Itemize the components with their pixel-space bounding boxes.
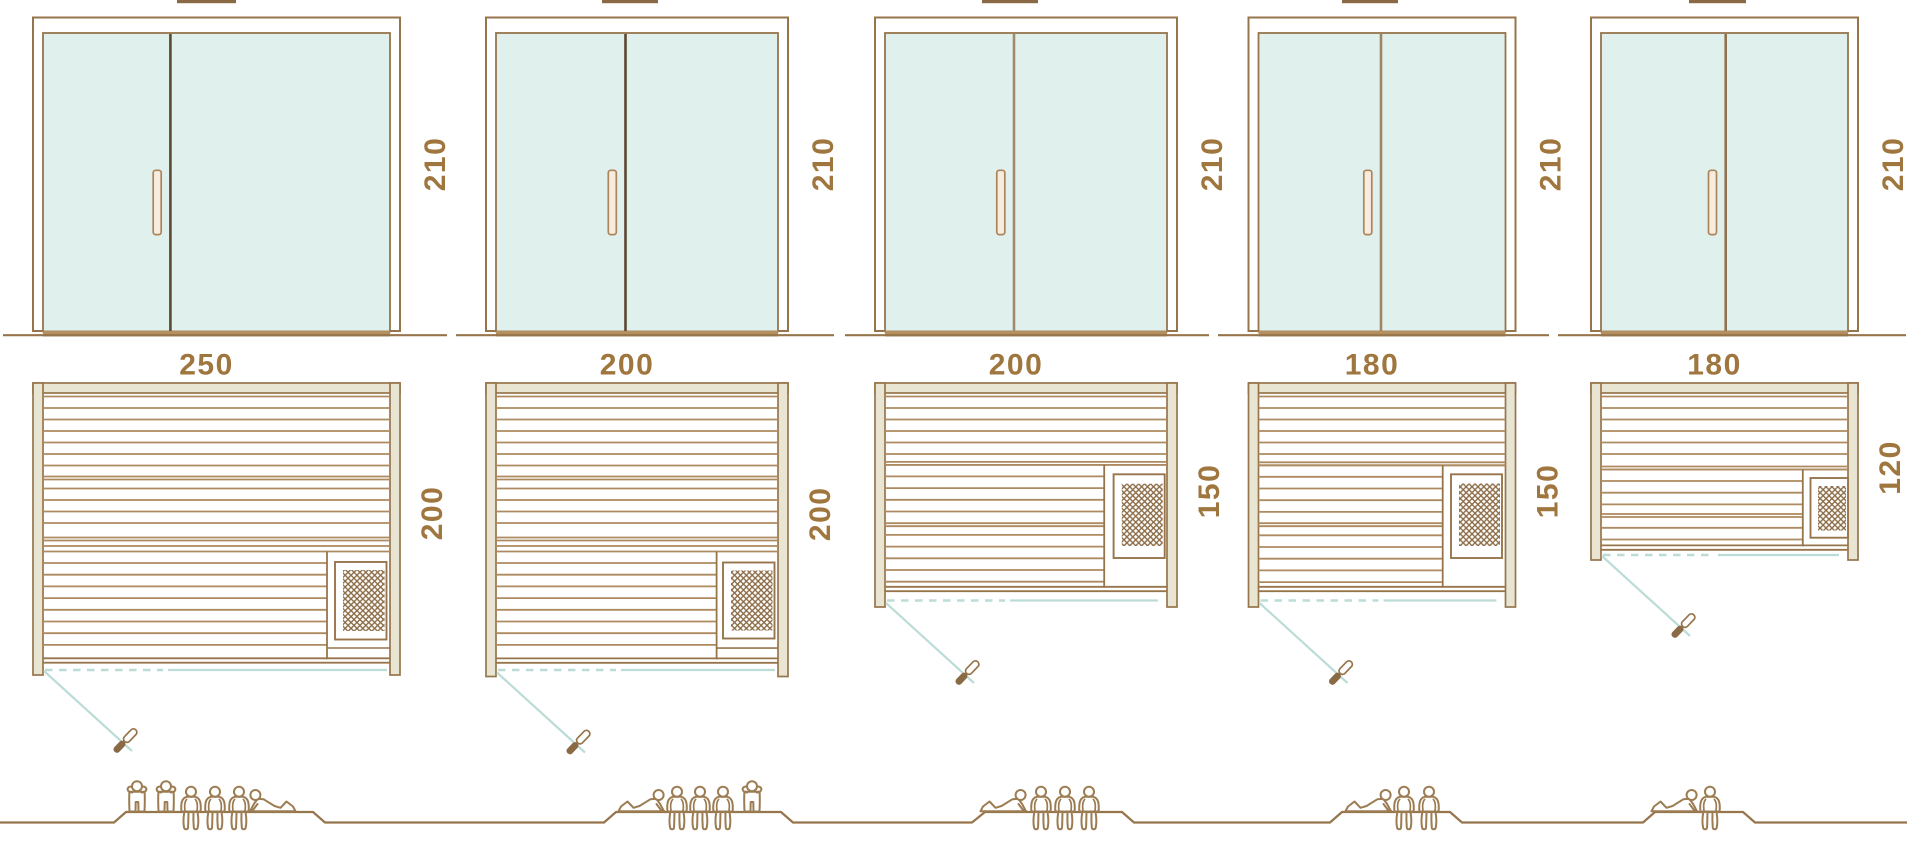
svg-text:180: 180 <box>1345 349 1400 382</box>
svg-text:210: 210 <box>1535 137 1568 192</box>
svg-text:200: 200 <box>416 486 449 541</box>
svg-text:210: 210 <box>807 137 840 192</box>
svg-text:210: 210 <box>1196 137 1229 192</box>
svg-text:210: 210 <box>419 137 452 192</box>
svg-text:200: 200 <box>600 349 655 382</box>
svg-text:150: 150 <box>1193 464 1226 519</box>
svg-text:150: 150 <box>1532 464 1565 519</box>
svg-text:200: 200 <box>804 487 837 542</box>
svg-text:200: 200 <box>989 349 1044 382</box>
svg-text:210: 210 <box>1877 137 1910 192</box>
svg-text:180: 180 <box>1687 349 1742 382</box>
svg-text:250: 250 <box>179 349 234 382</box>
svg-text:120: 120 <box>1874 440 1907 495</box>
